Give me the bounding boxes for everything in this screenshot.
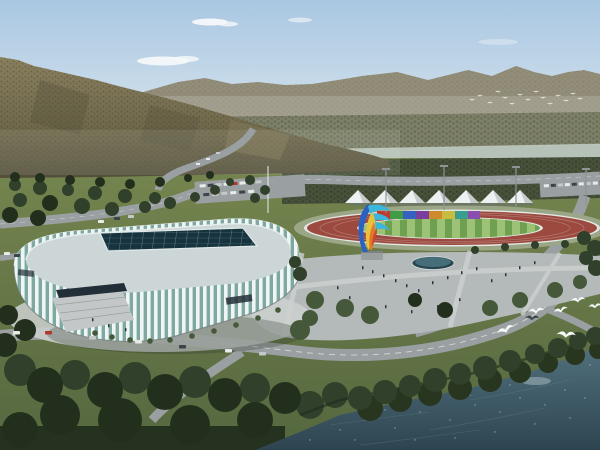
arena bbox=[8, 219, 312, 354]
rendering-canvas bbox=[0, 0, 600, 450]
scene-svg bbox=[0, 0, 600, 450]
color-panel-stand bbox=[377, 211, 480, 219]
reflecting-pool bbox=[412, 257, 454, 270]
